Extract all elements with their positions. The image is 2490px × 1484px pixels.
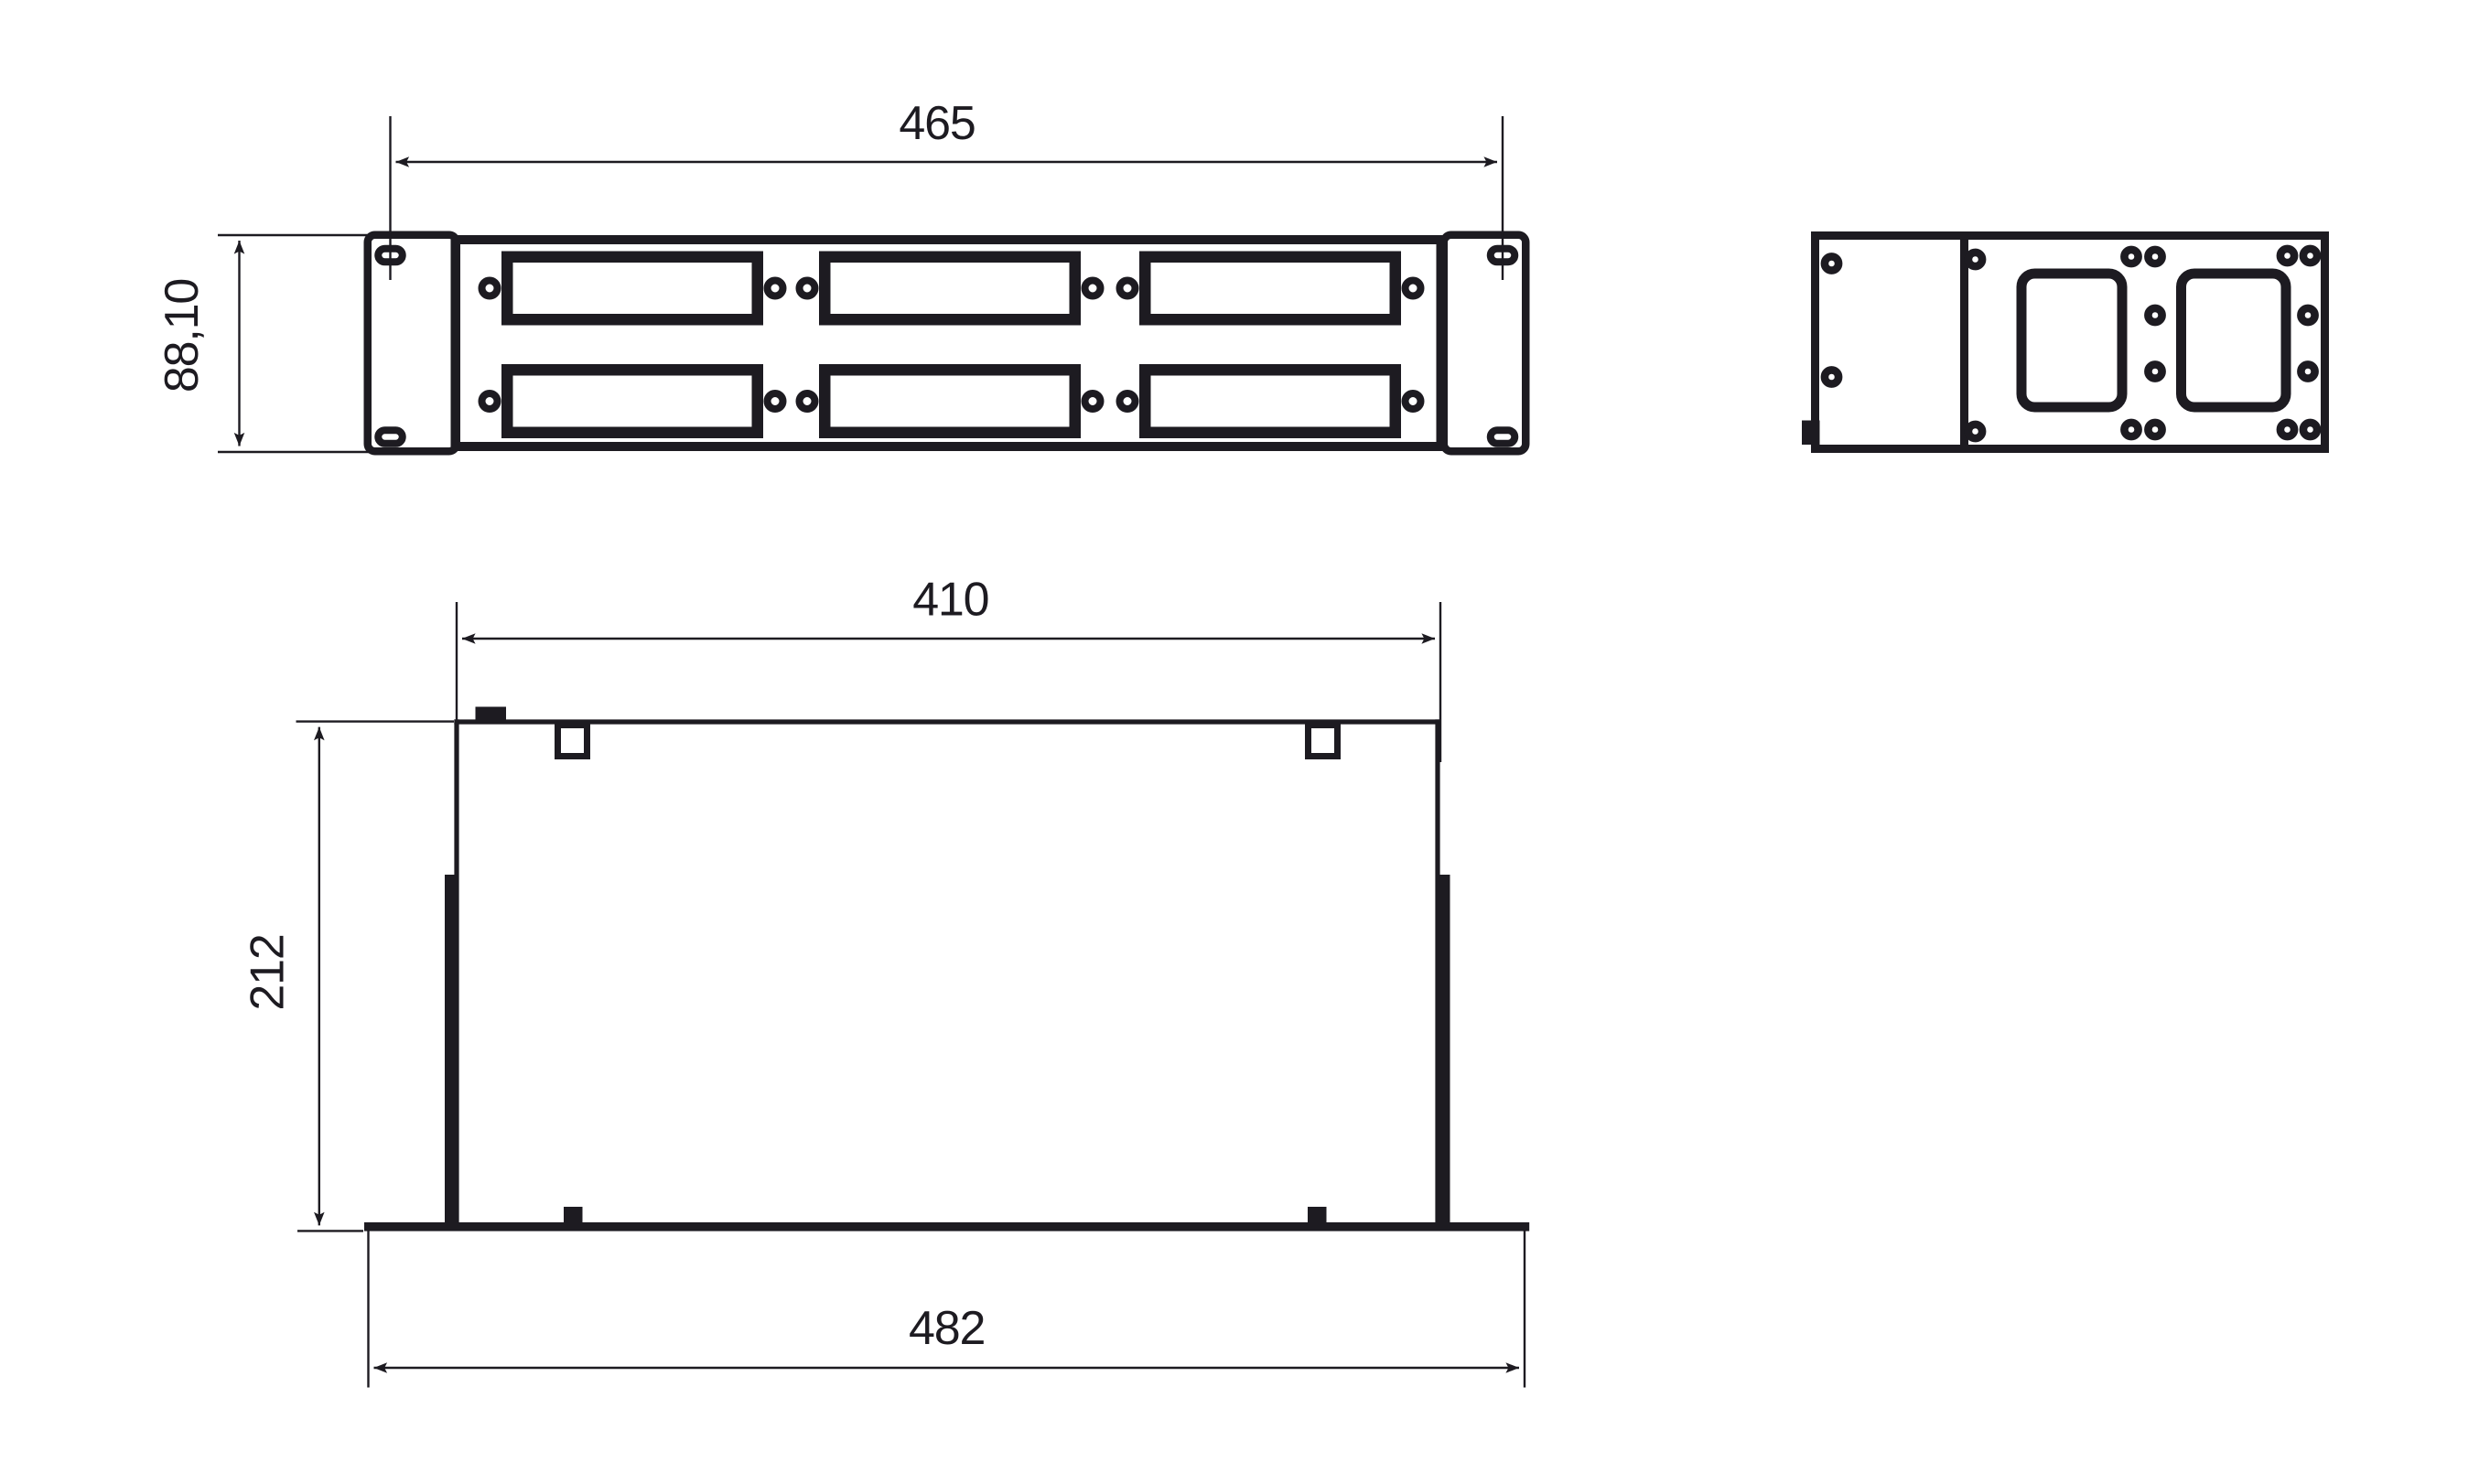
svg-text:465: 465 — [899, 97, 975, 150]
svg-text:410: 410 — [912, 574, 988, 627]
svg-text:88,10: 88,10 — [156, 279, 209, 393]
svg-text:482: 482 — [909, 1302, 985, 1355]
svg-text:212: 212 — [241, 934, 294, 1010]
